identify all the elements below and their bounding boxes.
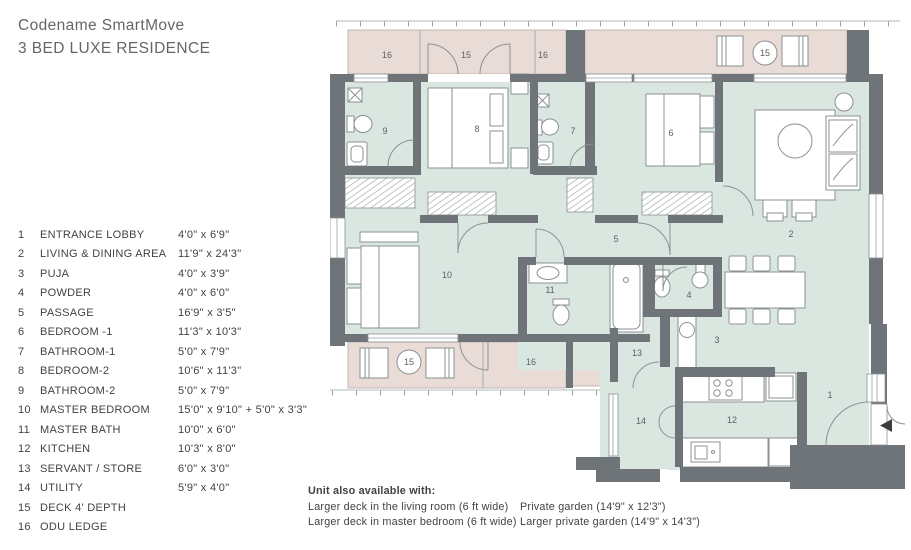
- legend-name: BEDROOM -1: [40, 326, 178, 338]
- legend-dim: 4'0" x 3'9": [178, 268, 308, 280]
- room-label-master-bedroom: 10: [442, 270, 452, 280]
- legend-dim: 6'0" x 3'0": [178, 463, 308, 475]
- unit-type: 3 BED LUXE RESIDENCE: [18, 37, 210, 60]
- legend-row: 6BEDROOM -111'3" x 10'3": [18, 323, 308, 343]
- chair-icon: [778, 256, 795, 271]
- legend-row: 11MASTER BATH10'0" x 6'0": [18, 420, 308, 440]
- chair-icon: [729, 309, 746, 324]
- wardrobe-bedroom2: [428, 192, 496, 215]
- note-right-1: Private garden (14'9" x 12'3"): [520, 500, 666, 516]
- washbasin-icon: [680, 323, 695, 338]
- note-right-2: Larger private garden (14'9" x 14'3"): [520, 515, 700, 531]
- legend-row: 14UTILITY5'9" x 4'0": [18, 479, 308, 499]
- floor-plan-page: Codename SmartMove 3 BED LUXE RESIDENCE …: [0, 0, 911, 550]
- legend-row: 16ODU LEDGE: [18, 518, 308, 538]
- legend-row: 9BATHROOM-25'0" x 7'9": [18, 381, 308, 401]
- legend-name: ODU LEDGE: [40, 521, 178, 533]
- legend-name: DECK 4' DEPTH: [40, 502, 178, 514]
- legend-name: LIVING & DINING AREA: [40, 248, 178, 260]
- dining-set: [725, 256, 805, 324]
- legend-name: MASTER BATH: [40, 424, 178, 436]
- legend-name: MASTER BEDROOM: [40, 404, 178, 416]
- room-label-kitchen: 12: [727, 415, 737, 425]
- legend-name: BEDROOM-2: [40, 365, 178, 377]
- room-label-lobby: 1: [827, 390, 832, 400]
- note-left-1: Larger deck in the living room (6 ft wid…: [308, 500, 520, 516]
- legend-num: 2: [18, 248, 40, 260]
- room-label-bedroom1: 6: [668, 128, 673, 138]
- chair-icon: [753, 309, 770, 324]
- legend-row: 5PASSAGE16'9" x 3'5": [18, 303, 308, 323]
- deck-chair: [782, 36, 808, 66]
- chair-icon: [753, 256, 770, 271]
- legend-row: 12KITCHEN10'3" x 8'0": [18, 440, 308, 460]
- legend-num: 6: [18, 326, 40, 338]
- room-label-odu-mid: 16: [538, 50, 548, 60]
- bed-icon: [361, 246, 419, 328]
- legend-dim: 5'0" x 7'9": [178, 346, 308, 358]
- legend-num: 8: [18, 365, 40, 377]
- legend-dim: 4'0" x 6'9": [178, 229, 308, 241]
- legend-name: UTILITY: [40, 482, 178, 494]
- room-label-bathroom2: 9: [382, 126, 387, 136]
- room-label-odu-left: 16: [382, 50, 392, 60]
- floor-plan: 16 15 16 15 9 8 7 6 2 5 10 11 4 3 13 15 …: [330, 10, 908, 492]
- shelf: [360, 232, 418, 242]
- room-label-utility: 14: [636, 416, 646, 426]
- room-label-living: 2: [788, 229, 793, 239]
- legend-name: KITCHEN: [40, 443, 178, 455]
- legend-row: 7BATHROOM-15'0" x 7'9": [18, 342, 308, 362]
- legend-dim: 5'9" x 4'0": [178, 482, 308, 494]
- legend-num: 5: [18, 307, 40, 319]
- legend-name: ENTRANCE LOBBY: [40, 229, 178, 241]
- page-title: Codename SmartMove 3 BED LUXE RESIDENCE: [18, 14, 210, 60]
- legend-num: 12: [18, 443, 40, 455]
- legend-name: BATHROOM-1: [40, 346, 178, 358]
- legend-num: 7: [18, 346, 40, 358]
- chair-icon: [778, 309, 795, 324]
- legend-row: 1ENTRANCE LOBBY4'0" x 6'9": [18, 225, 308, 245]
- legend-name: PUJA: [40, 268, 178, 280]
- legend-dim: 5'0" x 7'9": [178, 385, 308, 397]
- wardrobe-passage: [567, 178, 593, 212]
- legend-num: 9: [18, 385, 40, 397]
- room-label-puja: 3: [714, 335, 719, 345]
- legend-row: 2LIVING & DINING AREA11'9" x 24'3": [18, 245, 308, 265]
- legend-dim: 4'0" x 6'0": [178, 287, 308, 299]
- chair-icon: [729, 256, 746, 271]
- deck-chair: [426, 348, 454, 378]
- nightstand-icon: [511, 148, 528, 168]
- legend-name: PASSAGE: [40, 307, 178, 319]
- legend-row: 10MASTER BEDROOM15'0" x 9'10" + 5'0" x 3…: [18, 401, 308, 421]
- room-label-odu-bottom: 16: [526, 357, 536, 367]
- counter: [678, 313, 696, 368]
- legend-num: 13: [18, 463, 40, 475]
- puja-fixtures: [678, 313, 696, 368]
- legend-dim: 11'3" x 10'3": [178, 326, 308, 338]
- legend-dim: 10'6" x 11'3": [178, 365, 308, 377]
- note-left-2: Larger deck in master bedroom (6 ft wide…: [308, 515, 520, 531]
- legend-num: 15: [18, 502, 40, 514]
- legend-num: 11: [18, 424, 40, 436]
- wardrobe-master: [345, 178, 415, 208]
- room-label-deck-table-bottom: 15: [404, 357, 414, 367]
- legend-name: POWDER: [40, 287, 178, 299]
- toilet-icon: [553, 299, 569, 305]
- deck-chair: [360, 348, 388, 378]
- legend-num: 4: [18, 287, 40, 299]
- legend-dim: 10'3" x 8'0": [178, 443, 308, 455]
- legend-dim: 16'9" x 3'5": [178, 307, 308, 319]
- legend-dim: 10'0" x 6'0": [178, 424, 308, 436]
- room-label-master-bath: 11: [545, 285, 554, 295]
- toilet-icon: [347, 116, 354, 132]
- room-label-bathroom1: 7: [570, 126, 575, 136]
- room-label-passage: 5: [613, 234, 618, 244]
- legend-num: 1: [18, 229, 40, 241]
- stove-icon: [709, 376, 742, 400]
- legend-num: 14: [18, 482, 40, 494]
- legend-row: 8BEDROOM-210'6" x 11'3": [18, 362, 308, 382]
- legend-row: 13SERVANT / STORE6'0" x 3'0": [18, 459, 308, 479]
- legend-name: BATHROOM-2: [40, 385, 178, 397]
- legend-name: SERVANT / STORE: [40, 463, 178, 475]
- side-table-icon: [835, 93, 853, 111]
- toilet-icon: [655, 270, 669, 276]
- legend-num: 3: [18, 268, 40, 280]
- sink-icon: [537, 267, 559, 280]
- room-label-deck-table-top: 15: [760, 48, 770, 58]
- wardrobe-bedroom1: [642, 192, 712, 215]
- deck-chair: [717, 36, 743, 66]
- dining-table-icon: [725, 272, 805, 308]
- room-label-deck-top: 15: [461, 50, 471, 60]
- room-legend: 1ENTRANCE LOBBY4'0" x 6'9" 2LIVING & DIN…: [18, 225, 308, 537]
- room-label-powder: 4: [686, 290, 691, 300]
- project-name: Codename SmartMove: [18, 14, 210, 37]
- legend-dim: 11'9" x 24'3": [178, 248, 308, 260]
- legend-row: 15DECK 4' DEPTH: [18, 498, 308, 518]
- round-table-icon: [778, 124, 812, 158]
- legend-row: 4POWDER4'0" x 6'0": [18, 284, 308, 304]
- room-label-bedroom2: 8: [474, 124, 479, 134]
- legend-num: 10: [18, 404, 40, 416]
- legend-row: 3PUJA4'0" x 3'9": [18, 264, 308, 284]
- legend-num: 16: [18, 521, 40, 533]
- legend-dim: 15'0" x 9'10" + 5'0" x 3'3": [178, 404, 308, 416]
- room-label-servant: 13: [632, 348, 642, 358]
